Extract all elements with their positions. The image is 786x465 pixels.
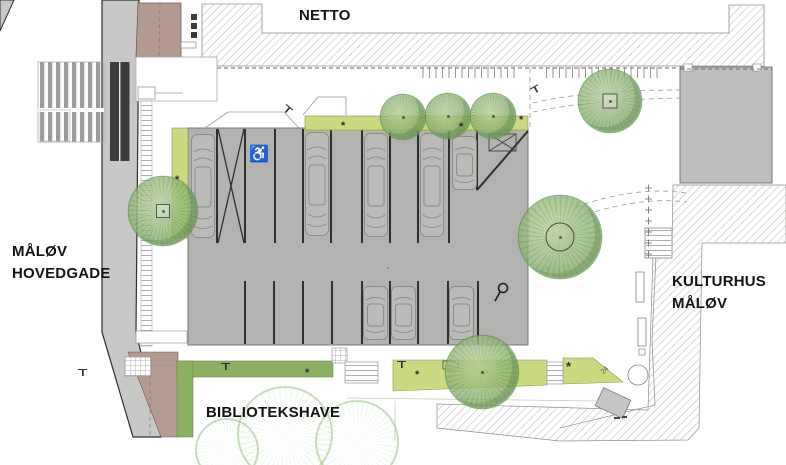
garden-hedge-north [177,361,333,377]
bench-icon [78,369,87,376]
parking-lot [188,128,549,345]
planting-strip-southeast [563,358,623,384]
bench-icon [221,363,230,370]
label-street-line1: MÅLØV [12,241,110,263]
building-netto [202,4,764,66]
road-marking-strip [110,62,119,161]
label-street: MÅLØV HOVEDGADE [12,241,110,285]
plant-mark-icon: * [566,363,571,371]
label-kulturhus-line1: KULTURHUS [672,271,766,293]
garden-hedge-west [177,361,193,437]
label-garden: BIBLIOTEKSHAVE [206,402,340,424]
label-street-line2: HOVEDGADE [12,263,110,285]
bench-icon [397,361,406,368]
road-corner [0,0,14,31]
plant-mark-icon: * [341,122,345,130]
plant-mark-icon: * [415,371,419,379]
planter [638,318,646,346]
road-marking-strip [121,62,130,161]
tree [129,177,197,245]
site-plan-canvas: ♿ * * * * * * * 24 NETTO MÅLØV HOVEDGADE… [0,0,786,465]
label-netto: NETTO [299,5,351,27]
plant-mark-icon: * [175,176,179,184]
tree [471,94,515,138]
tree [579,70,641,132]
bike-rack-row [417,67,520,78]
label-kulturhus: KULTURHUS MÅLØV [672,271,766,315]
building-gray-east [680,64,772,183]
label-kulturhus-line2: MÅLØV [672,293,766,315]
building-brown-north [136,3,197,57]
tree [426,94,470,138]
pedestrian-crosswalk [38,62,104,142]
netto-forecourt [136,57,217,101]
planter [636,272,644,302]
plant-mark-icon: * [459,123,463,131]
site-plan-svg [0,0,786,465]
bench-outline [138,87,155,99]
building-entrance [181,42,196,48]
tree [519,196,601,278]
plant-mark-icon: * [305,369,309,377]
tree [381,95,425,139]
plant-mark-icon: * [519,116,523,124]
tree [446,336,518,408]
round-table [628,365,648,385]
accessible-parking-icon: ♿ [249,147,269,163]
